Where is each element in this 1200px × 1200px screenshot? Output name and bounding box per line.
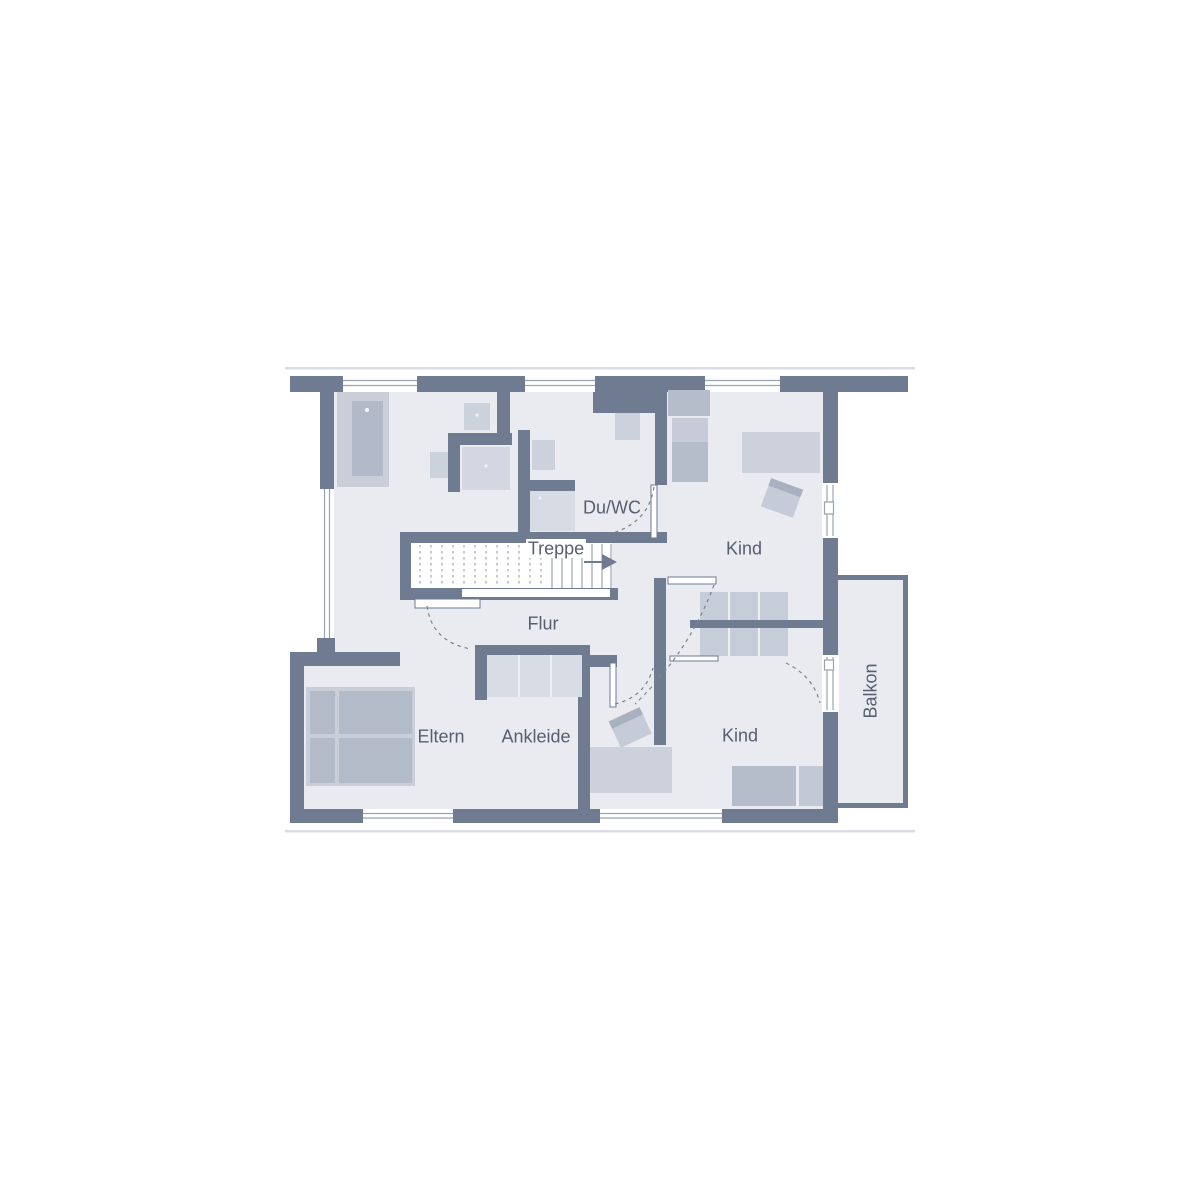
door-leaf-duwc — [651, 485, 657, 538]
stair-landing-strip — [462, 589, 610, 597]
label-kid-room-top: Kind — [726, 539, 762, 560]
closet-row — [487, 655, 582, 697]
wardrobe-bottom-row — [700, 628, 788, 656]
wall-shower-stub — [530, 480, 575, 491]
label-balcony: Balkon — [861, 663, 882, 718]
wc-area — [462, 447, 510, 490]
wall-balcony-right — [903, 575, 908, 808]
wall-bath-vertical — [448, 445, 460, 492]
wall-dressing-left-stub — [475, 645, 487, 700]
mattress-2 — [339, 738, 412, 783]
desk — [742, 432, 820, 473]
bed-pillow — [672, 418, 708, 442]
label-dressing-room: Ankleide — [501, 727, 570, 748]
wall-duct-block — [593, 388, 660, 413]
wall-left-lower — [290, 652, 304, 823]
dressing-closets — [487, 655, 582, 697]
mattress-1 — [339, 691, 412, 734]
wall-parents-top — [290, 652, 400, 666]
washbasin-3 — [532, 440, 555, 470]
pillow-2 — [310, 738, 335, 783]
wardrobe-top-row — [700, 592, 788, 620]
balcony-door — [822, 655, 839, 712]
window-bottom-2 — [600, 809, 722, 823]
window-right — [822, 483, 839, 538]
door-leaf-hall-parents — [415, 599, 480, 608]
desk — [590, 747, 672, 793]
window-top-3 — [705, 376, 780, 392]
wall-bath-horizontal — [448, 433, 512, 445]
label-kid-room-bottom: Kind — [722, 726, 758, 747]
window-left — [320, 489, 334, 638]
bed-body — [672, 442, 708, 482]
wall-balcony-bottom — [838, 803, 908, 808]
label-hallway: Flur — [528, 614, 559, 635]
window-top-2 — [525, 376, 595, 392]
wall-right — [823, 392, 838, 823]
shower — [530, 491, 575, 531]
shower-drain — [539, 497, 542, 500]
door-leaf-kid-top — [668, 577, 716, 584]
door-leaf-kid-bottom — [670, 656, 718, 661]
duwc-washbasin — [615, 413, 640, 440]
wall-left-upper — [320, 392, 334, 489]
floor-plan-canvas: Du/WC Treppe Kind Flur Eltern Ankleide K… — [0, 0, 1200, 1200]
wall-kid-partition — [654, 578, 666, 745]
wall-duwc-kind — [655, 392, 667, 485]
parents-room-furniture — [306, 687, 415, 786]
wall-wardrobe-divider — [690, 620, 823, 628]
window-bottom-1 — [363, 809, 453, 823]
washbasin-1-tap — [476, 414, 479, 417]
label-parents-room: Eltern — [417, 727, 464, 748]
bed-body — [732, 766, 796, 806]
window-top-1 — [343, 376, 417, 392]
bed-pillow — [799, 766, 823, 806]
washbasin-2 — [430, 452, 448, 478]
pillow-1 — [310, 691, 335, 734]
label-bath-wc: Du/WC — [583, 498, 641, 519]
wc-dot — [485, 465, 488, 468]
bathtub — [352, 401, 383, 476]
floor-plan-drawing — [0, 0, 1200, 1200]
label-stairs: Treppe — [528, 539, 584, 560]
door-leaf-hall-kid — [610, 663, 616, 707]
wall-shower-divider — [518, 430, 530, 543]
bathtub-drain — [365, 408, 369, 412]
wardrobe-block — [668, 390, 710, 416]
wall-balcony-top — [838, 575, 908, 580]
